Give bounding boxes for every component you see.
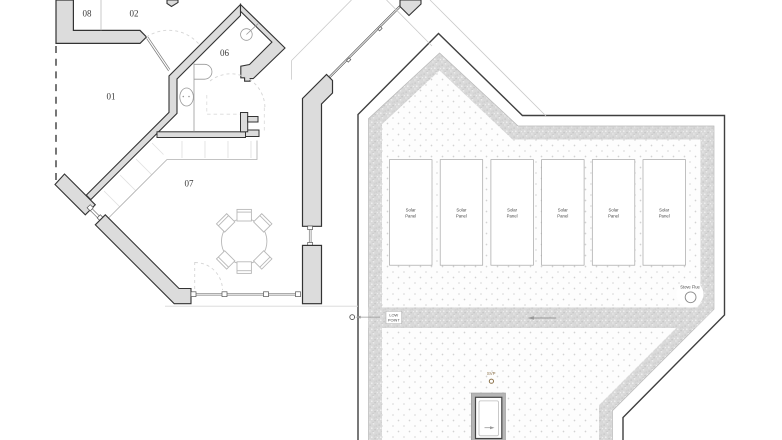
svg-text:06: 06 xyxy=(220,48,230,58)
svg-text:Solar: Solar xyxy=(659,208,670,213)
svg-text:07: 07 xyxy=(185,179,195,189)
svg-text:Solar: Solar xyxy=(608,208,619,213)
svg-text:Panel: Panel xyxy=(456,214,467,219)
svg-text:Solar: Solar xyxy=(456,208,467,213)
svg-text:Solar: Solar xyxy=(406,208,417,213)
svg-text:02: 02 xyxy=(130,9,139,19)
svg-text:Panel: Panel xyxy=(507,214,518,219)
svg-text:SVP: SVP xyxy=(487,371,496,376)
svg-text:Panel: Panel xyxy=(557,214,568,219)
svg-text:Solar: Solar xyxy=(558,208,569,213)
svg-text:Panel: Panel xyxy=(608,214,619,219)
svg-text:Solar: Solar xyxy=(507,208,518,213)
svg-text:Panel: Panel xyxy=(405,214,416,219)
svg-text:08: 08 xyxy=(83,9,93,19)
svg-text:POINT: POINT xyxy=(388,318,401,323)
svg-text:01: 01 xyxy=(107,92,116,102)
svg-text:Stove Flue: Stove Flue xyxy=(680,284,700,289)
svg-text:Panel: Panel xyxy=(659,214,670,219)
